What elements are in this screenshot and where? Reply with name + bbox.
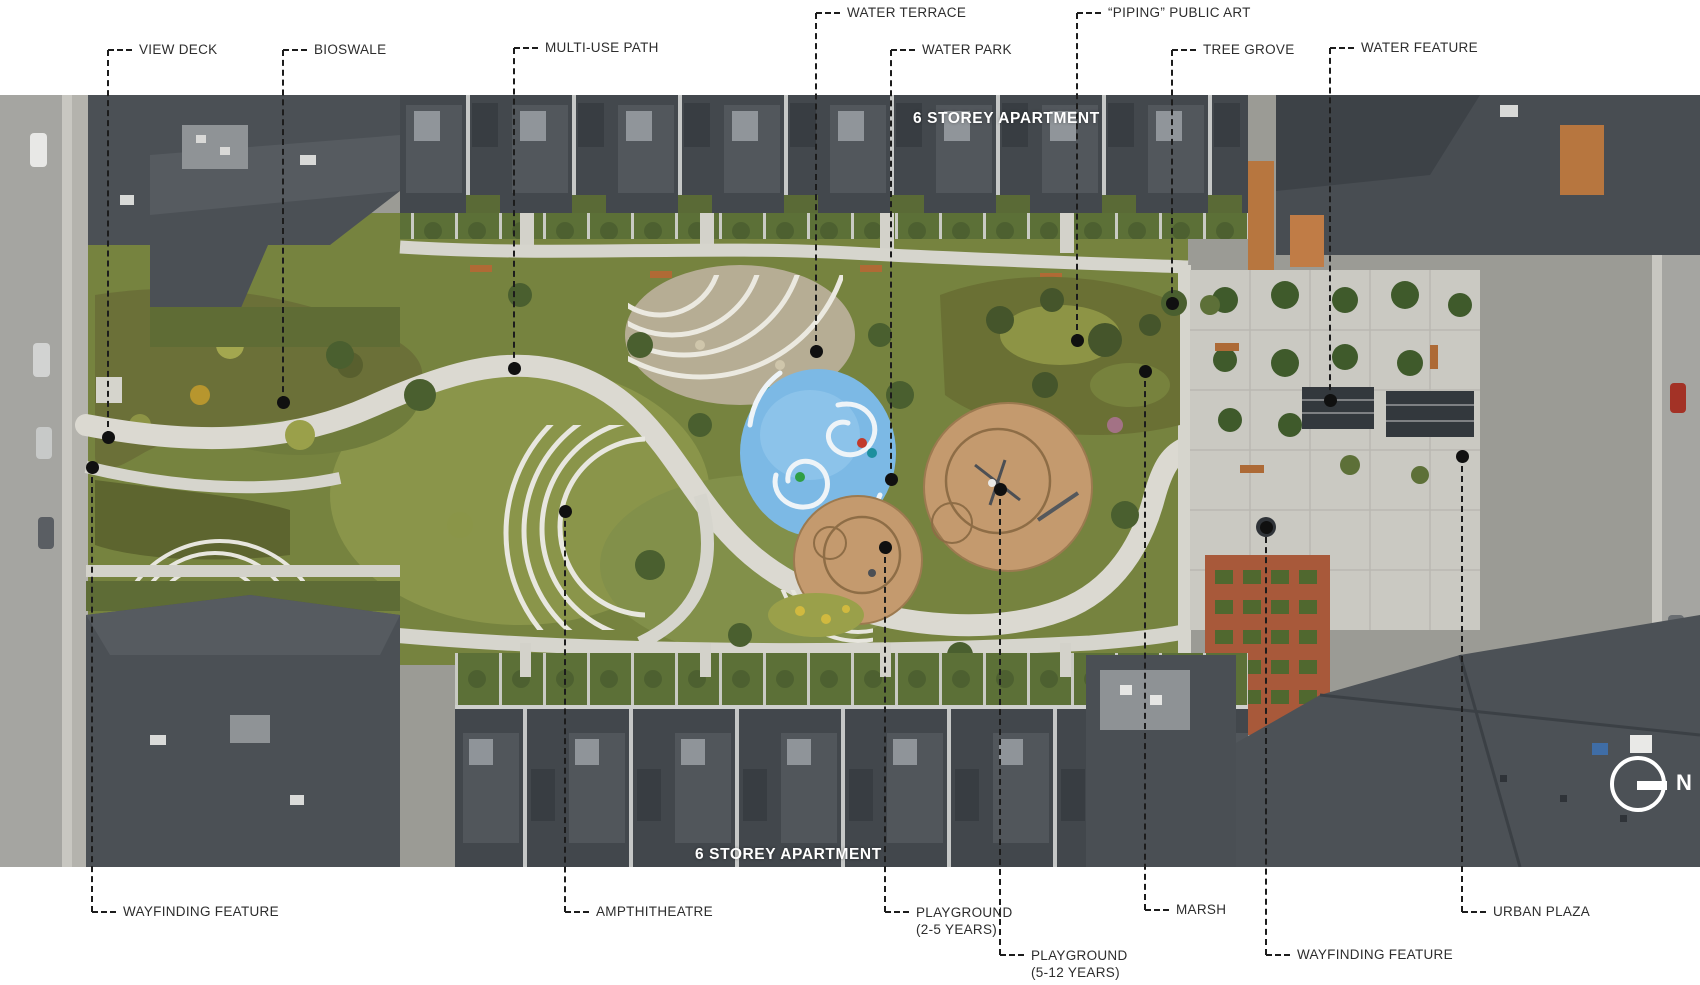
callout-water-feature: WATER FEATURE [1330, 40, 1478, 56]
bench [860, 265, 882, 272]
callout-tree-grove: TREE GROVE [1172, 42, 1295, 58]
callout-label: WATER FEATURE [1354, 40, 1478, 56]
callout-label: URBAN PLAZA [1486, 904, 1590, 920]
callout-label-line2: (5-12 YEARS) [1031, 964, 1128, 981]
callout-label: TREE GROVE [1196, 42, 1295, 58]
leader-bioswale [282, 50, 284, 402]
leader-marsh [1144, 371, 1146, 910]
apartment-label-bottom: 6 STOREY APARTMENT [695, 846, 882, 864]
dot-multi-use-path [508, 362, 521, 375]
leader-tree-grove [1171, 50, 1173, 303]
leader-wayfinding-left [91, 467, 93, 912]
leader-playground-2-5 [884, 547, 886, 912]
leader-water-terrace [815, 13, 817, 351]
leader-elbow [565, 911, 589, 913]
compass-needle [1637, 781, 1667, 790]
leader-elbow [514, 47, 538, 49]
car [38, 517, 54, 549]
callout-marsh: MARSH [1145, 902, 1226, 918]
callout-label: MARSH [1169, 902, 1226, 918]
callout-wayfinding-left: WAYFINDING FEATURE [92, 904, 279, 920]
bench [1240, 465, 1264, 473]
leader-elbow [1077, 12, 1101, 14]
callout-water-terrace: WATER TERRACE [816, 5, 966, 21]
leader-piping-public-art [1076, 13, 1078, 340]
buildings-top-right [1248, 95, 1700, 281]
spray-toy [857, 438, 867, 448]
bench [470, 265, 492, 272]
north-arrow: N [1610, 756, 1700, 816]
leader-multi-use-path [513, 48, 515, 368]
leader-elbow [1000, 954, 1024, 956]
car [30, 133, 47, 167]
leader-elbow [816, 12, 840, 14]
callout-piping-public-art: “PIPING” PUBLIC ART [1077, 5, 1251, 21]
dot-water-feature [1324, 394, 1337, 407]
leader-urban-plaza [1461, 456, 1463, 912]
dot-urban-plaza [1456, 450, 1469, 463]
leader-ampthitheatre [564, 511, 566, 912]
leader-water-park [890, 50, 892, 479]
callout-label-line1: PLAYGROUND [916, 904, 1013, 921]
callout-label: VIEW DECK [132, 42, 217, 58]
left-street [0, 95, 88, 867]
callout-label: WATER PARK [915, 42, 1012, 58]
building-marsh-south [1086, 655, 1236, 867]
dot-tree-grove [1166, 297, 1179, 310]
callout-label: WATER TERRACE [840, 5, 966, 21]
dot-playground-2-5 [879, 541, 892, 554]
view-deck-platform [96, 377, 122, 403]
leader-water-feature [1329, 48, 1331, 400]
townhomes-top [400, 95, 1248, 253]
callout-water-park: WATER PARK [891, 42, 1012, 58]
playground-5-12 [924, 403, 1092, 571]
callout-multi-use-path: MULTI-USE PATH [514, 40, 659, 56]
callout-urban-plaza: URBAN PLAZA [1462, 904, 1590, 920]
leader-playground-5-12 [999, 489, 1001, 955]
callout-label: PLAYGROUND (5-12 YEARS) [1024, 947, 1128, 981]
leader-elbow [108, 49, 132, 51]
apartment-label-top: 6 STOREY APARTMENT [913, 110, 1100, 128]
annotated-site-plan: 6 STOREY APARTMENT 6 STOREY APARTMENT N … [0, 0, 1700, 985]
leader-view-deck [107, 50, 109, 437]
callout-label-line1: PLAYGROUND [1031, 947, 1128, 964]
callout-playground-5-12: PLAYGROUND (5-12 YEARS) [1000, 947, 1128, 981]
callout-label: WAYFINDING FEATURE [116, 904, 279, 920]
dot-water-terrace [810, 345, 823, 358]
compass-n-label: N [1676, 770, 1692, 796]
leader-elbow [891, 49, 915, 51]
car [33, 343, 50, 377]
leader-elbow [92, 911, 116, 913]
leader-elbow [1462, 911, 1486, 913]
dot-water-park [885, 473, 898, 486]
callout-ampthitheatre: AMPTHITHEATRE [565, 904, 713, 920]
car [36, 427, 52, 459]
spray-toy [795, 472, 805, 482]
callout-bioswale: BIOSWALE [283, 42, 386, 58]
leader-elbow [1172, 49, 1196, 51]
callout-label: BIOSWALE [307, 42, 386, 58]
bench [650, 271, 672, 278]
dot-bioswale [277, 396, 290, 409]
callout-playground-2-5: PLAYGROUND (2-5 YEARS) [885, 904, 1013, 938]
leader-wayfinding-right [1265, 527, 1267, 955]
leader-elbow [1266, 954, 1290, 956]
callout-label: PLAYGROUND (2-5 YEARS) [909, 904, 1013, 938]
car [1670, 383, 1686, 413]
flower-bed [768, 593, 864, 637]
spray-toy [867, 448, 877, 458]
dot-ampthitheatre [559, 505, 572, 518]
callout-label-line2: (2-5 YEARS) [916, 921, 1013, 938]
callout-view-deck: VIEW DECK [108, 42, 217, 58]
dot-playground-5-12 [994, 483, 1007, 496]
callout-label: AMPTHITHEATRE [589, 904, 713, 920]
dot-piping-public-art [1071, 334, 1084, 347]
dot-wayfinding-left [86, 461, 99, 474]
bench [1215, 343, 1239, 351]
dot-marsh [1139, 365, 1152, 378]
leader-elbow [885, 911, 909, 913]
callout-label: MULTI-USE PATH [538, 40, 659, 56]
leader-elbow [1145, 909, 1169, 911]
leader-elbow [1330, 47, 1354, 49]
callout-label: WAYFINDING FEATURE [1290, 947, 1453, 963]
bench [1430, 345, 1438, 369]
dot-view-deck [102, 431, 115, 444]
callout-label: “PIPING” PUBLIC ART [1101, 5, 1251, 21]
leader-elbow [283, 49, 307, 51]
aerial-photo [0, 95, 1700, 867]
dot-wayfinding-right [1260, 521, 1273, 534]
building-bottom-left [86, 565, 400, 867]
callout-wayfinding-right: WAYFINDING FEATURE [1266, 947, 1453, 963]
